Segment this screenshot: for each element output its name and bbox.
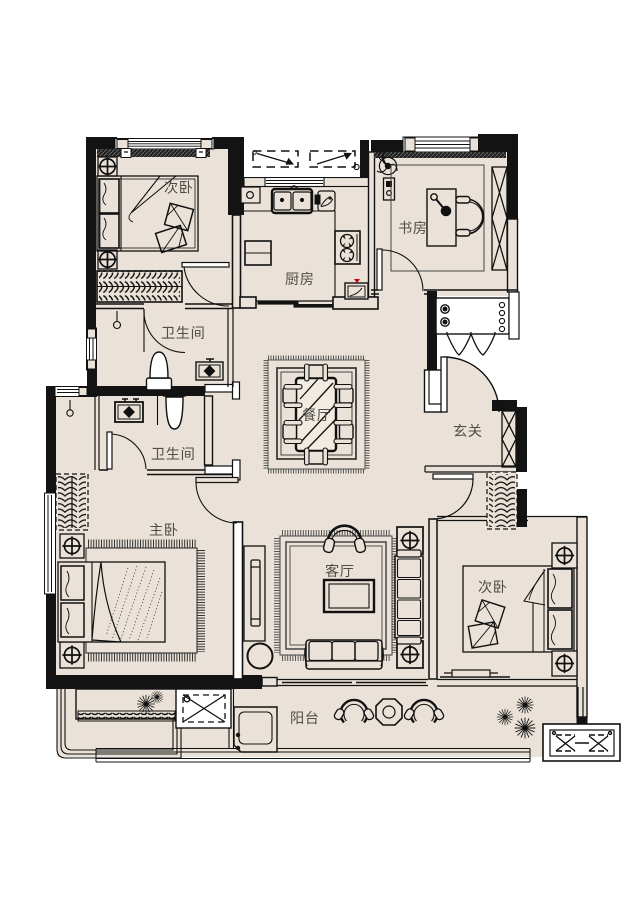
svg-text:主卧: 主卧 bbox=[149, 523, 179, 539]
svg-text:客厅: 客厅 bbox=[325, 563, 355, 580]
svg-text:阳台: 阳台 bbox=[290, 711, 320, 727]
svg-text:厨房: 厨房 bbox=[285, 272, 315, 288]
svg-text:卫生间: 卫生间 bbox=[151, 447, 195, 463]
svg-text:次卧: 次卧 bbox=[478, 580, 508, 596]
svg-text:卫生间: 卫生间 bbox=[161, 326, 205, 342]
svg-text:玄关: 玄关 bbox=[453, 423, 483, 440]
svg-text:书房: 书房 bbox=[398, 221, 428, 237]
svg-text:餐厅: 餐厅 bbox=[302, 408, 332, 424]
svg-text:次卧: 次卧 bbox=[164, 181, 194, 197]
